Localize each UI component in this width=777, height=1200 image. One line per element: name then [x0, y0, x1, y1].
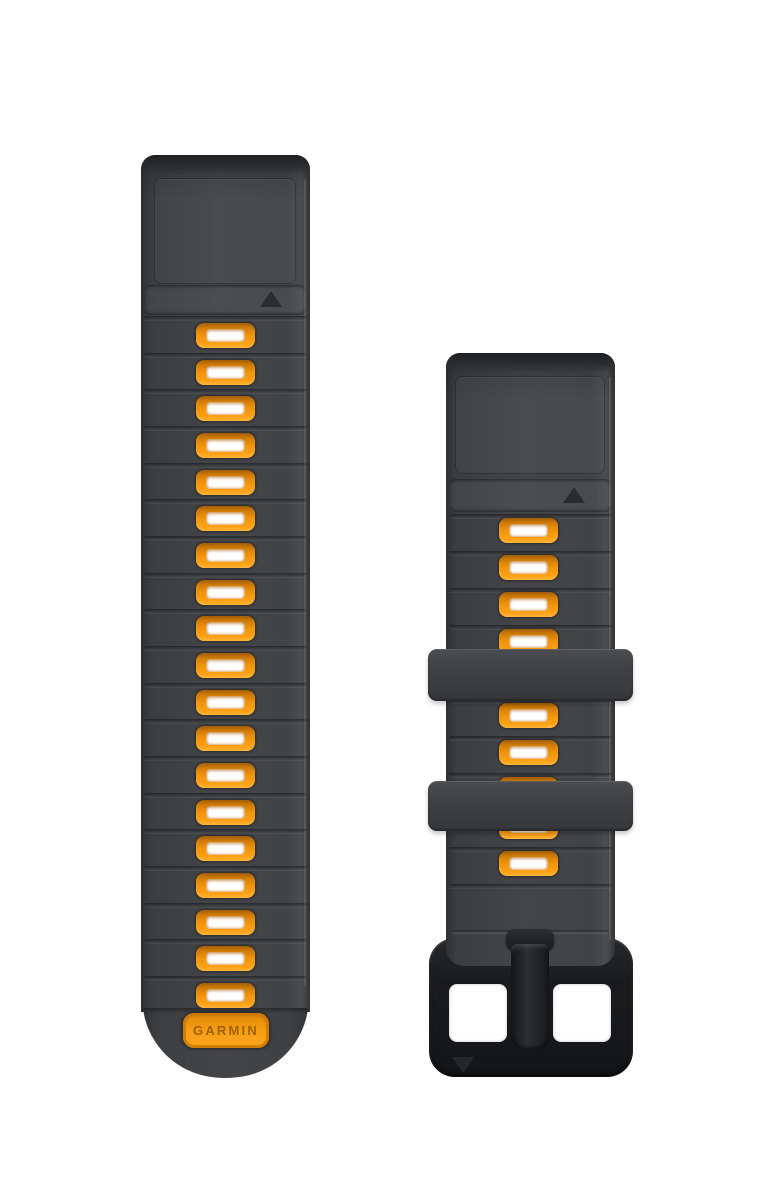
- triangle-up-icon: [260, 291, 282, 307]
- vent-slot: [196, 836, 255, 861]
- right-strap-top-cap: [446, 353, 615, 373]
- right-strap-inset-panel: [456, 377, 604, 473]
- buckle-opening-left: [449, 984, 507, 1042]
- vent-slot: [499, 740, 558, 765]
- vent-slot: [196, 470, 255, 495]
- strap-groove: [144, 719, 307, 724]
- vent-slot: [196, 580, 255, 605]
- vent-slot: [196, 543, 255, 568]
- vent-hole: [206, 622, 245, 635]
- vent-hole: [206, 989, 245, 1002]
- vent-hole: [206, 549, 245, 562]
- vent-hole: [206, 402, 245, 415]
- left-strap-tip: GARMIN: [143, 1008, 308, 1078]
- strap-keeper-2: [428, 781, 633, 831]
- vent-slot: [196, 726, 255, 751]
- strap-groove: [144, 463, 307, 468]
- vent-hole: [509, 561, 548, 574]
- vent-hole: [509, 746, 548, 759]
- triangle-up-icon: [563, 487, 585, 503]
- strap-groove: [144, 793, 307, 798]
- vent-hole: [206, 476, 245, 489]
- vent-slot: [499, 851, 558, 876]
- triangle-down-icon: [452, 1057, 474, 1073]
- strap-groove: [144, 646, 307, 651]
- strap-groove: [144, 976, 307, 981]
- vent-slot: [196, 396, 255, 421]
- left-strap-top-cap: [141, 155, 310, 175]
- vent-hole: [206, 696, 245, 709]
- strap-groove: [144, 426, 307, 431]
- vent-hole: [509, 524, 548, 537]
- vent-slot: [499, 518, 558, 543]
- vent-slot: [499, 703, 558, 728]
- product-image: GARMIN: [0, 0, 777, 1200]
- garmin-logo-label: GARMIN: [193, 1023, 259, 1038]
- right-strap-notch-band: [450, 479, 611, 512]
- vent-hole: [206, 512, 245, 525]
- strap-groove: [144, 756, 307, 761]
- vent-hole: [206, 659, 245, 672]
- vent-slot: [499, 592, 558, 617]
- buckle-opening-right: [553, 984, 611, 1042]
- garmin-logo: GARMIN: [183, 1013, 269, 1048]
- vent-hole: [206, 806, 245, 819]
- vent-hole: [206, 586, 245, 599]
- vent-hole: [206, 952, 245, 965]
- vent-slot: [196, 690, 255, 715]
- vent-hole: [206, 769, 245, 782]
- vent-hole: [509, 709, 548, 722]
- vent-slot: [196, 360, 255, 385]
- vent-slot: [196, 616, 255, 641]
- vent-slot: [196, 506, 255, 531]
- vent-hole: [206, 329, 245, 342]
- strap-groove: [144, 353, 307, 358]
- strap-groove: [144, 573, 307, 578]
- vent-hole: [509, 598, 548, 611]
- strap-groove: [144, 829, 307, 834]
- strap-groove: [144, 389, 307, 394]
- strap-groove: [144, 866, 307, 871]
- strap-groove: [144, 609, 307, 614]
- vent-slot: [196, 653, 255, 678]
- vent-hole: [206, 916, 245, 929]
- vent-hole: [206, 879, 245, 892]
- vent-slot: [196, 763, 255, 788]
- strap-groove: [144, 499, 307, 504]
- vent-hole: [206, 732, 245, 745]
- strap-groove: [144, 903, 307, 908]
- strap-groove: [144, 939, 307, 944]
- left-strap: [141, 155, 310, 1012]
- vent-hole: [509, 857, 548, 870]
- left-strap-inset-panel: [155, 179, 295, 283]
- vent-slot: [196, 946, 255, 971]
- vent-slot: [196, 983, 255, 1008]
- vent-slot: [196, 910, 255, 935]
- vent-hole: [206, 439, 245, 452]
- strap-keeper-1: [428, 649, 633, 701]
- vent-slot: [196, 873, 255, 898]
- vent-hole: [206, 842, 245, 855]
- strap-groove: [144, 683, 307, 688]
- strap-groove: [144, 536, 307, 541]
- vent-slot: [196, 323, 255, 348]
- vent-hole: [509, 635, 548, 648]
- strap-groove: [144, 316, 307, 321]
- vent-slot: [196, 800, 255, 825]
- buckle-pin: [511, 944, 549, 1050]
- strap-groove: [449, 884, 612, 889]
- vent-hole: [206, 366, 245, 379]
- vent-slot: [499, 555, 558, 580]
- vent-slot: [196, 433, 255, 458]
